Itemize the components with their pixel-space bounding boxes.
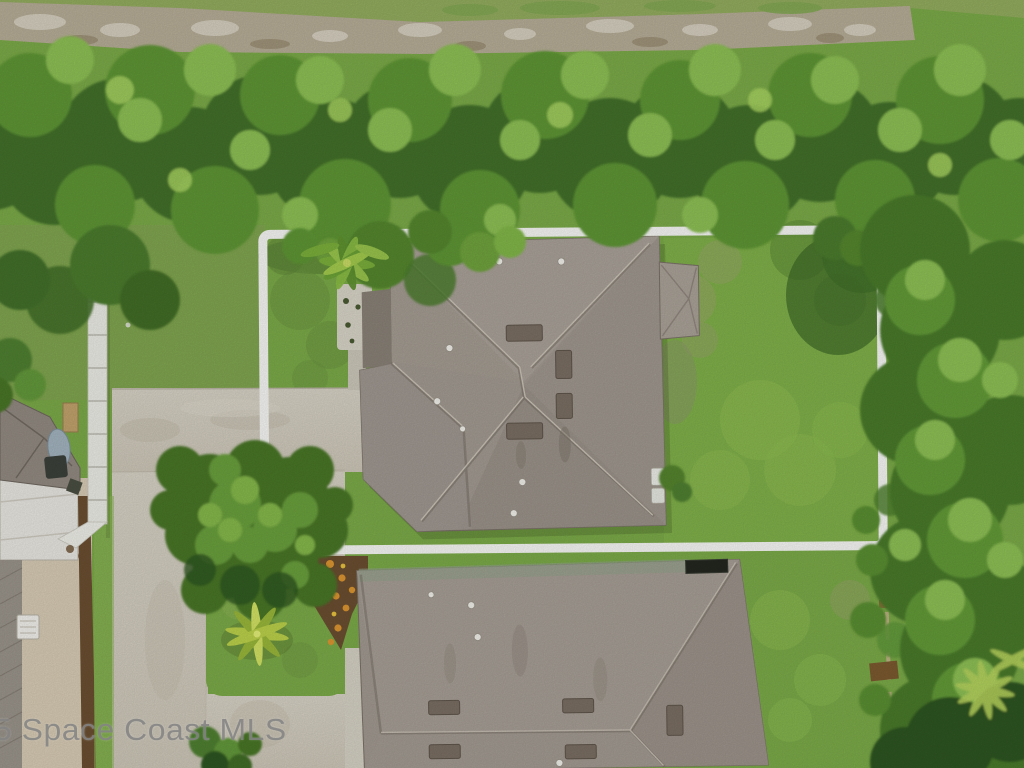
aerial-listing-photo: 5 Space Coast MLS	[0, 0, 1024, 768]
aerial-photo-canvas	[0, 0, 1024, 768]
mls-watermark: 5 Space Coast MLS	[0, 712, 287, 748]
photo-grain-overlay	[0, 0, 1024, 768]
